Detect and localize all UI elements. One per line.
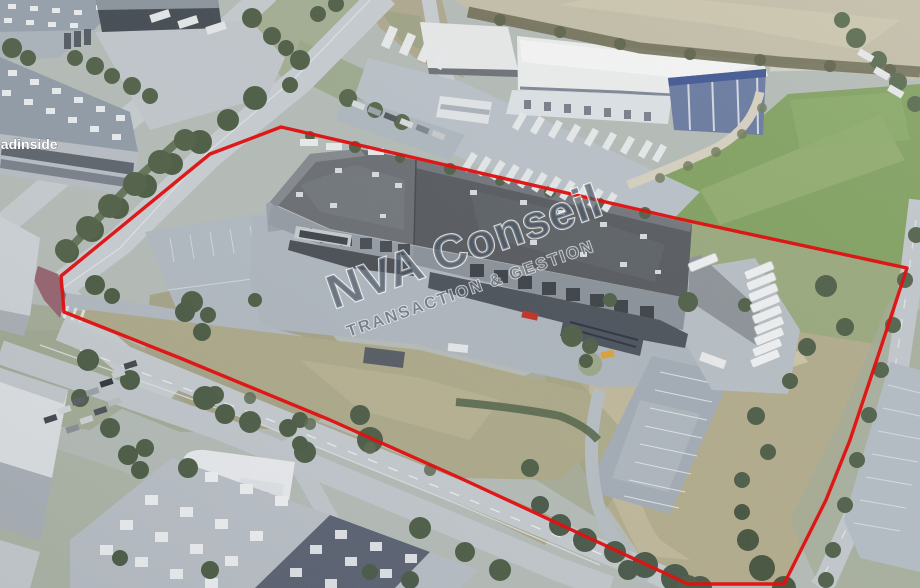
svg-text:eadinside: eadinside xyxy=(0,136,58,152)
